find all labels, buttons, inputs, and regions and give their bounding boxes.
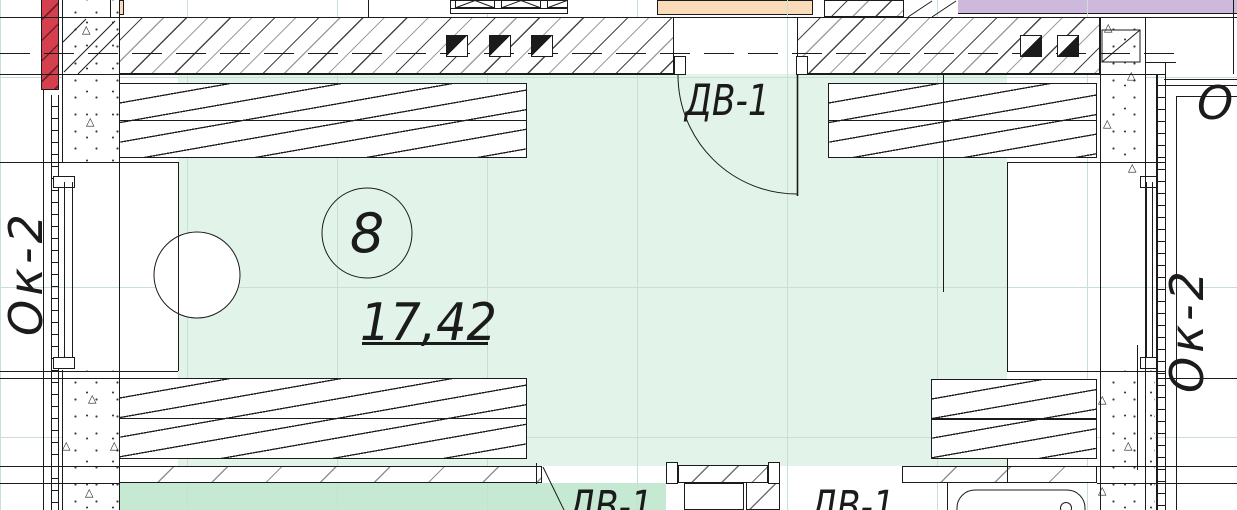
bathtub-outline — [957, 490, 1085, 510]
lower-edge-lines — [0, 379, 1237, 484]
bathtub-drain — [1061, 503, 1072, 510]
column-diagonal-marks — [63, 19, 119, 74]
vent-duct-square — [1020, 35, 1042, 57]
vent-duct-square — [489, 35, 511, 57]
vent-duct-square — [1057, 35, 1079, 57]
window-label-left: Ок-2 — [0, 198, 53, 348]
door-label-bottom-right: ДВ-1 — [810, 486, 895, 510]
vent-duct-square — [531, 35, 553, 57]
right-wall-verticals — [1008, 17, 1146, 510]
left-wall-verticals — [44, 0, 179, 510]
masked-niche-circle — [154, 232, 240, 318]
plan-linework — [0, 0, 1237, 510]
door-label-bottom-left: ДВ-1 — [568, 486, 653, 510]
area-underline — [362, 342, 488, 345]
room-number: 8 — [342, 207, 392, 261]
door-label-top: ДВ-1 — [685, 80, 770, 123]
window-frame-right — [1147, 182, 1153, 358]
vent-duct-square — [446, 35, 468, 57]
window-label-top-right: Ок — [1197, 80, 1237, 126]
window-label-right: Ок-2 — [1160, 255, 1214, 405]
vent-shaft-crosses — [455, 1, 567, 9]
window-frame-left — [65, 182, 73, 358]
door-swing-line-bottom — [543, 467, 564, 510]
floor-plan: △ △ △ △ △ △ △ △ △ △ △ △ △ — [0, 0, 1237, 510]
top-strip-stubs — [111, 0, 369, 17]
